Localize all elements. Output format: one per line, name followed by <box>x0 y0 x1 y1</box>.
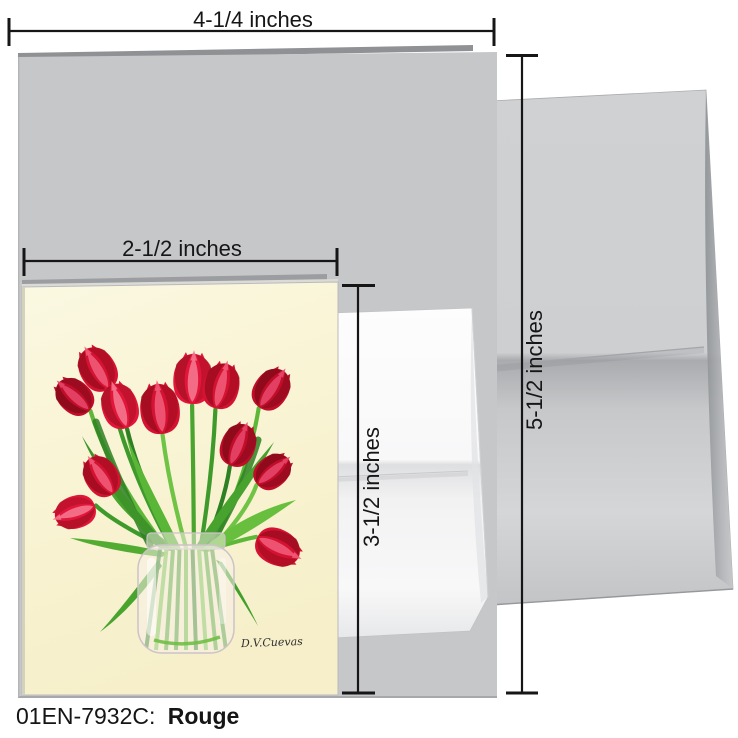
small-card: D.V.Cuevas <box>22 274 338 695</box>
jar-highlight <box>147 558 156 636</box>
tulip-stem <box>192 405 194 548</box>
card-width-label: 4-1/4 inches <box>193 7 313 32</box>
product-name: Rouge <box>168 703 240 729</box>
jar-highlight <box>219 558 226 624</box>
card-height-label: 5-1/2 inches <box>522 310 547 430</box>
notecard-height-label: 3-1/2 inches <box>359 427 384 547</box>
product-code: 01EN-7932C: <box>16 703 155 729</box>
dimension-card-width: 4-1/4 inches <box>8 7 495 46</box>
product-label: 01EN-7932C: Rouge <box>16 703 239 729</box>
notecard-width-label: 2-1/2 inches <box>122 236 242 261</box>
artist-signature: D.V.Cuevas <box>240 635 304 650</box>
product-mockup: 4-1/4 inches 5-1/2 inches D.V.Cuevas 2-1… <box>0 0 738 738</box>
small-envelope <box>330 308 488 638</box>
mockup-canvas: 4-1/4 inches 5-1/2 inches D.V.Cuevas 2-1… <box>0 0 738 738</box>
